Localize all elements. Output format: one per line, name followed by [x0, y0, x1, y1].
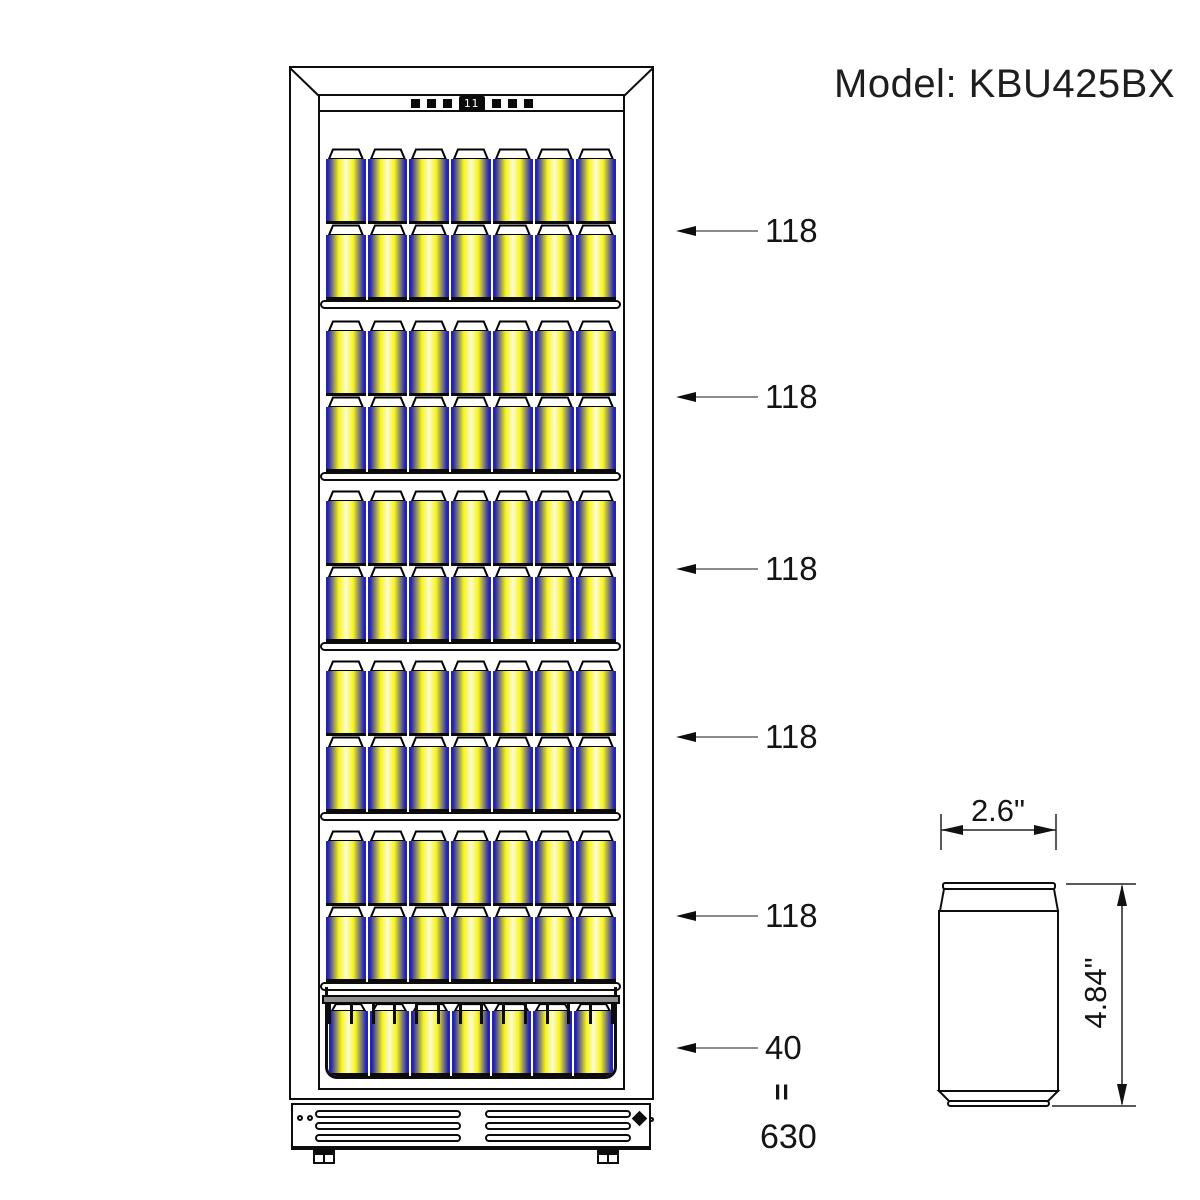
can-lid: [535, 396, 575, 407]
can-body: [368, 159, 408, 224]
can-lid: [451, 490, 491, 501]
can-lid: [576, 396, 616, 407]
can: [493, 224, 533, 300]
shelf-section-2: [326, 320, 616, 472]
can: [326, 224, 366, 300]
can-lid: [409, 224, 449, 235]
shelf-section-5: [326, 830, 616, 982]
control-panel: 11: [320, 96, 623, 112]
can-body: [576, 501, 616, 566]
can-body: [326, 501, 366, 566]
glass-shelf: [320, 300, 621, 309]
can-lid: [451, 148, 491, 159]
can-lid: [368, 224, 408, 235]
can-body: [409, 235, 449, 300]
can: [368, 396, 408, 472]
left-arrow-icon: [676, 732, 696, 742]
drain-plug-icon: [632, 1111, 648, 1127]
can: [409, 396, 449, 472]
leveling-foot: [597, 1150, 619, 1164]
model-title: Model: KBU425BX: [834, 62, 1175, 107]
can: [535, 736, 575, 812]
basket-wire: [589, 1003, 592, 1024]
can-row: [326, 906, 616, 982]
can-body: [451, 407, 491, 472]
can-lid: [368, 830, 408, 841]
can-lid: [409, 660, 449, 671]
capacity-label: 40: [765, 1029, 802, 1067]
can: [493, 660, 533, 736]
total-capacity: 630: [760, 1118, 817, 1157]
can: [326, 906, 366, 982]
can-body: [409, 671, 449, 736]
can: [576, 566, 616, 642]
can-lid: [533, 1003, 572, 1011]
can-body: [493, 235, 533, 300]
can-body: [535, 501, 575, 566]
can-body: [326, 841, 366, 906]
can-body: [370, 1011, 409, 1076]
left-arrow-icon: [676, 1043, 696, 1053]
can-lid: [370, 1003, 409, 1011]
can-body: [368, 235, 408, 300]
can-lid: [409, 148, 449, 159]
can-lid: [409, 320, 449, 331]
can-body: [451, 501, 491, 566]
can-lid: [326, 490, 366, 501]
can-body: [493, 917, 533, 982]
can: [368, 736, 408, 812]
can-lid: [493, 906, 533, 917]
can-outline: [939, 883, 1058, 1106]
basket-wire: [611, 1003, 614, 1024]
can: [451, 396, 491, 472]
can-width-label: 2.6": [938, 793, 1058, 829]
can-body: [535, 331, 575, 396]
can: [493, 906, 533, 982]
can-lid: [576, 830, 616, 841]
can: [576, 660, 616, 736]
can: [326, 566, 366, 642]
can-body: [451, 747, 491, 812]
can-row: [326, 490, 616, 566]
can-lid: [409, 830, 449, 841]
control-button: [524, 99, 533, 108]
can: [535, 396, 575, 472]
can-body: [451, 841, 491, 906]
can-row: [326, 148, 616, 224]
can-body: [326, 917, 366, 982]
can-body: [451, 577, 491, 642]
capacity-label: 118: [765, 550, 818, 588]
can: [326, 396, 366, 472]
basket-wire: [437, 1003, 440, 1024]
can: [535, 224, 575, 300]
can-lid: [326, 736, 366, 747]
can: [452, 1003, 491, 1076]
can: [368, 660, 408, 736]
can-lid: [576, 320, 616, 331]
control-button: [443, 99, 452, 108]
basket-wire: [328, 1003, 331, 1024]
can-body: [535, 577, 575, 642]
can-lid: [326, 320, 366, 331]
can-lid: [368, 320, 408, 331]
can-lid: [493, 736, 533, 747]
can: [409, 148, 449, 224]
glass-shelf: [320, 812, 621, 821]
can-lid: [493, 320, 533, 331]
can-body: [576, 671, 616, 736]
basket-wire: [350, 1003, 353, 1024]
can-body: [535, 671, 575, 736]
arrow-line: [696, 1047, 758, 1049]
can: [326, 660, 366, 736]
can-body: [533, 1011, 572, 1076]
can-body: [368, 917, 408, 982]
can-body: [451, 159, 491, 224]
control-button: [508, 99, 517, 108]
can-lid: [535, 148, 575, 159]
can-body: [493, 501, 533, 566]
can-lid: [451, 566, 491, 577]
can: [493, 736, 533, 812]
can-body: [451, 235, 491, 300]
can-lid: [368, 566, 408, 577]
capacity-callout: 118: [676, 717, 818, 757]
can-body: [368, 671, 408, 736]
can: [576, 148, 616, 224]
can: [451, 906, 491, 982]
can: [409, 660, 449, 736]
vent-slot: [485, 1110, 631, 1118]
can-body: [451, 917, 491, 982]
can-lid: [451, 224, 491, 235]
can-lid: [493, 490, 533, 501]
can-body: [493, 159, 533, 224]
arrow-line: [696, 736, 758, 738]
can: [409, 736, 449, 812]
can-body: [576, 747, 616, 812]
shelf-section-4: [326, 660, 616, 812]
capacity-label: 118: [765, 718, 818, 756]
can: [409, 566, 449, 642]
can-lid: [326, 830, 366, 841]
can: [576, 736, 616, 812]
can-row: [326, 830, 616, 906]
can-lid: [535, 224, 575, 235]
can: [493, 320, 533, 396]
can-body: [409, 917, 449, 982]
can-lid: [451, 320, 491, 331]
temp-display: 11: [459, 96, 485, 111]
can-lid: [368, 490, 408, 501]
can-body: [368, 331, 408, 396]
can-lid: [535, 490, 575, 501]
can-body: [409, 747, 449, 812]
can-row: [326, 566, 616, 642]
can-body: [493, 671, 533, 736]
control-button: [411, 99, 420, 108]
can: [326, 148, 366, 224]
can-lid: [326, 566, 366, 577]
arrow-line: [696, 396, 758, 398]
can: [409, 490, 449, 566]
can-lid: [576, 490, 616, 501]
can-body: [409, 501, 449, 566]
capacity-callout: 118: [676, 549, 818, 589]
basket-wire: [502, 1003, 505, 1024]
can-lid: [576, 906, 616, 917]
can-lid: [409, 566, 449, 577]
can-lid: [451, 906, 491, 917]
can-body: [326, 577, 366, 642]
can-body: [576, 235, 616, 300]
can-body: [368, 577, 408, 642]
can-lid: [535, 566, 575, 577]
can-body: [535, 841, 575, 906]
can-row: [326, 224, 616, 300]
can: [576, 906, 616, 982]
capacity-callout: 118: [676, 377, 818, 417]
glass-shelf: [320, 642, 621, 651]
can-body: [493, 407, 533, 472]
can: [409, 224, 449, 300]
can-lid: [574, 1003, 613, 1011]
can: [493, 490, 533, 566]
can-body: [576, 577, 616, 642]
can-body: [576, 159, 616, 224]
can-lid: [326, 660, 366, 671]
can-lid: [329, 1003, 368, 1011]
basket-wire: [372, 1003, 375, 1024]
can-lid: [451, 660, 491, 671]
can-body: [535, 917, 575, 982]
can: [368, 566, 408, 642]
basket-wire: [415, 1003, 418, 1024]
can-row: [326, 396, 616, 472]
can-body: [574, 1011, 613, 1076]
can: [533, 1003, 572, 1076]
can-lid: [576, 660, 616, 671]
base-grille: [291, 1103, 651, 1150]
can-lid: [326, 148, 366, 159]
can-body: [409, 159, 449, 224]
can: [451, 224, 491, 300]
screw-hole: [649, 1117, 654, 1122]
can-lid: [535, 830, 575, 841]
can: [368, 490, 408, 566]
capacity-label: 118: [765, 212, 818, 250]
can-lid: [535, 736, 575, 747]
can-lid: [368, 906, 408, 917]
can-lid: [368, 396, 408, 407]
can: [535, 320, 575, 396]
can-body: [368, 501, 408, 566]
can-lid: [493, 148, 533, 159]
can-height-label: 4.84": [1079, 923, 1113, 1063]
can-lid: [409, 396, 449, 407]
can-body: [329, 1011, 368, 1076]
can-lid: [368, 736, 408, 747]
vent-slot: [315, 1110, 461, 1118]
can-lid: [326, 906, 366, 917]
can-body: [368, 841, 408, 906]
capacity-callout: 40: [676, 1028, 802, 1068]
wire-basket: [325, 1003, 617, 1079]
can-body: [576, 841, 616, 906]
can-body: [326, 747, 366, 812]
can: [368, 224, 408, 300]
control-button: [492, 99, 501, 108]
can-lid: [368, 148, 408, 159]
can: [451, 736, 491, 812]
can-row: [326, 660, 616, 736]
can: [576, 490, 616, 566]
can: [326, 320, 366, 396]
can-lid: [326, 396, 366, 407]
can: [576, 224, 616, 300]
can: [535, 830, 575, 906]
can: [451, 830, 491, 906]
can-body: [535, 235, 575, 300]
can-body: [409, 331, 449, 396]
can: [535, 660, 575, 736]
can: [493, 148, 533, 224]
arrow-line: [696, 230, 758, 232]
vent-slot: [485, 1134, 631, 1142]
can: [451, 660, 491, 736]
can-lid: [368, 660, 408, 671]
can-body: [493, 331, 533, 396]
can-body: [326, 331, 366, 396]
control-button: [427, 99, 436, 108]
can-body: [409, 577, 449, 642]
screw-hole: [297, 1115, 303, 1121]
left-arrow-icon: [676, 226, 696, 236]
can-body: [326, 671, 366, 736]
basket-wire: [524, 1003, 527, 1024]
spec-sheet: Model: KBU425BX 11 11811811811811840 = 6…: [0, 0, 1200, 1200]
can-lid: [576, 148, 616, 159]
left-arrow-icon: [676, 564, 696, 574]
can-body: [368, 407, 408, 472]
can-lid: [452, 1003, 491, 1011]
can: [326, 830, 366, 906]
can: [370, 1003, 409, 1076]
can: [493, 566, 533, 642]
basket-wire: [393, 1003, 396, 1024]
basket-wire: [546, 1003, 549, 1024]
can-lid: [409, 906, 449, 917]
can-body: [535, 159, 575, 224]
basket-wire: [459, 1003, 462, 1024]
can: [368, 148, 408, 224]
can: [493, 396, 533, 472]
can-lid: [326, 224, 366, 235]
can-lid: [493, 224, 533, 235]
can: [535, 566, 575, 642]
can-lid: [493, 660, 533, 671]
shelf-section-3: [326, 490, 616, 642]
arrow-line: [696, 568, 758, 570]
glass-shelf: [320, 982, 621, 991]
can-body: [493, 577, 533, 642]
leveling-foot: [313, 1150, 335, 1164]
capacity-label: 118: [765, 897, 818, 935]
can-row: [326, 736, 616, 812]
can-body: [452, 1011, 491, 1076]
can-body: [493, 747, 533, 812]
capacity-callout: 118: [676, 896, 818, 936]
can-lid: [451, 830, 491, 841]
basket-wire: [480, 1003, 483, 1024]
can-body: [451, 671, 491, 736]
can: [451, 490, 491, 566]
can-lid: [493, 830, 533, 841]
basket-wire: [567, 1003, 570, 1024]
can-lid: [535, 906, 575, 917]
can-lid: [576, 566, 616, 577]
can: [576, 830, 616, 906]
can: [368, 320, 408, 396]
can-body: [576, 407, 616, 472]
can: [535, 148, 575, 224]
can: [326, 490, 366, 566]
can-row: [326, 320, 616, 396]
capacity-callout: 118: [676, 211, 818, 251]
can-lid: [535, 660, 575, 671]
can-lid: [576, 736, 616, 747]
can-lid: [493, 566, 533, 577]
can: [368, 830, 408, 906]
can-body: [535, 407, 575, 472]
can: [409, 906, 449, 982]
can-body: [326, 235, 366, 300]
can-lid: [451, 396, 491, 407]
shelf-section-1: [326, 148, 616, 300]
can-lid: [576, 224, 616, 235]
can-lid: [535, 320, 575, 331]
can-lid: [409, 490, 449, 501]
can-body: [409, 407, 449, 472]
can-body: [368, 747, 408, 812]
vent-slot: [315, 1134, 461, 1142]
can-lid: [493, 396, 533, 407]
vent-slot: [485, 1122, 631, 1130]
screw-hole: [307, 1115, 313, 1121]
can: [576, 320, 616, 396]
arrow-line: [696, 915, 758, 917]
can: [535, 906, 575, 982]
can: [493, 830, 533, 906]
can: [576, 396, 616, 472]
can: [326, 736, 366, 812]
can: [574, 1003, 613, 1076]
can: [329, 1003, 368, 1076]
can-body: [326, 407, 366, 472]
can-body: [576, 917, 616, 982]
glass-shelf: [320, 472, 621, 481]
vent-slot: [315, 1122, 461, 1130]
can: [368, 906, 408, 982]
can: [535, 490, 575, 566]
can-body: [576, 331, 616, 396]
equals-sign: =: [766, 1078, 798, 1106]
can-lid: [451, 736, 491, 747]
can-lid: [409, 736, 449, 747]
can-body: [535, 747, 575, 812]
